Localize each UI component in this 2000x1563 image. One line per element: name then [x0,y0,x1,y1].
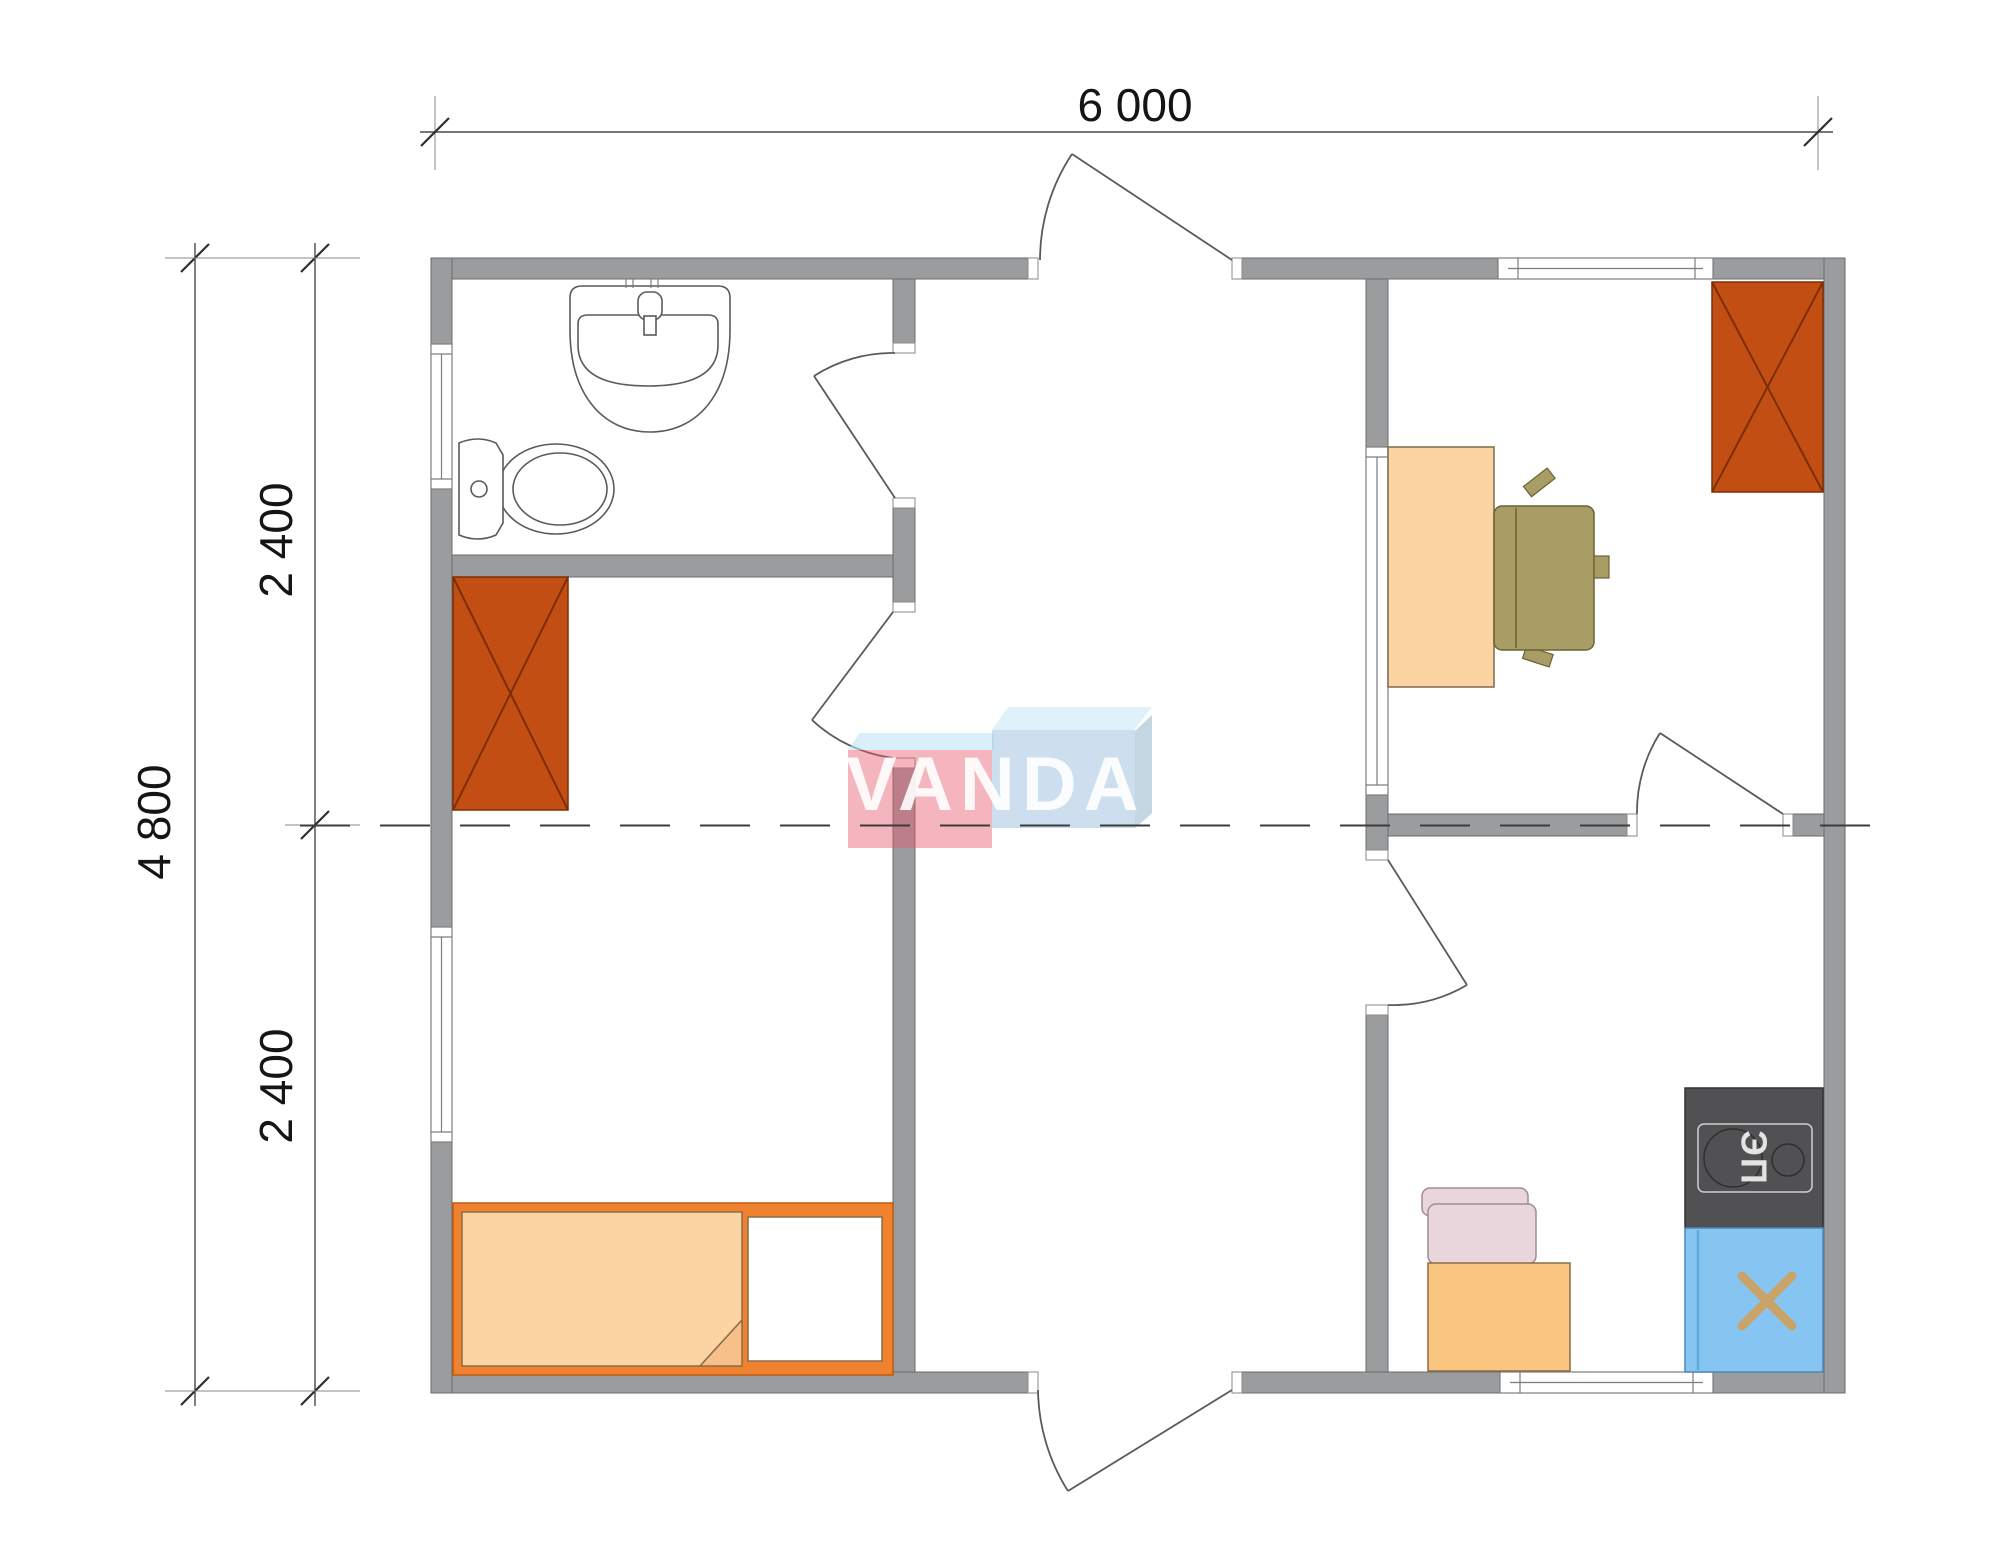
floor-plan-canvas: ЭП [0,0,2000,1563]
axis-overlay [0,0,2000,1563]
